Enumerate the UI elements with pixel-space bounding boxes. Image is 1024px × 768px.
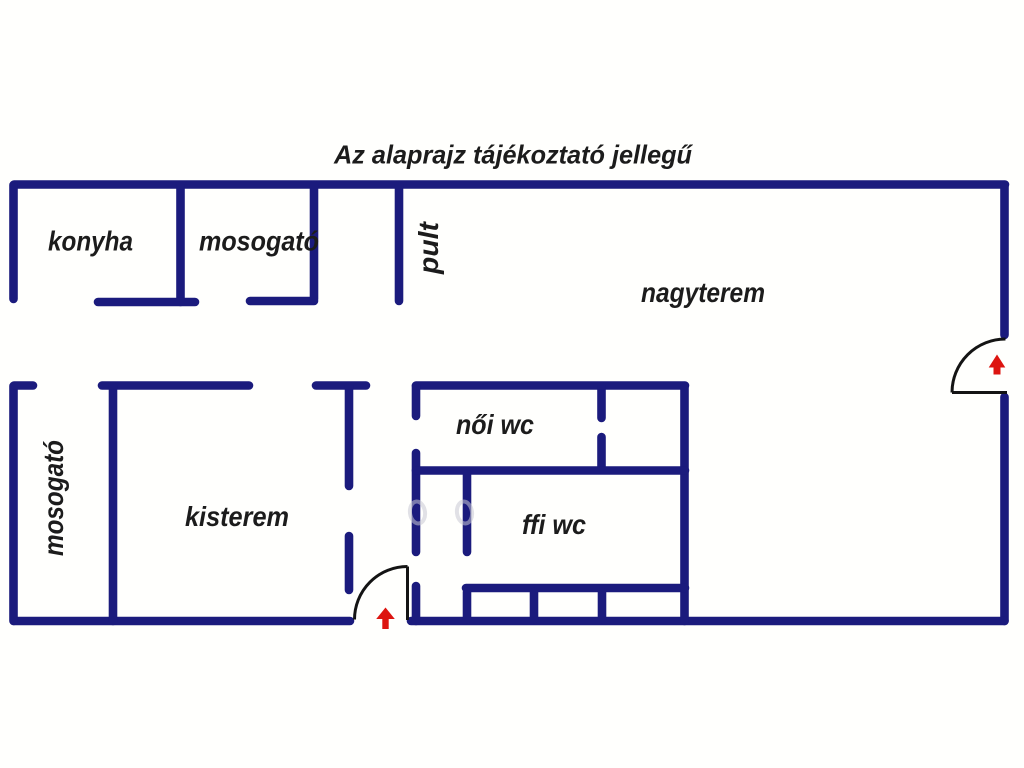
svg-text:pult: pult xyxy=(413,220,444,275)
svg-text:Az alaprajz tájékoztató jelleg: Az alaprajz tájékoztató jellegű xyxy=(333,140,694,170)
svg-text:ffi wc: ffi wc xyxy=(522,509,586,540)
svg-text:mosogató: mosogató xyxy=(38,440,69,556)
svg-text:női wc: női wc xyxy=(456,409,534,440)
svg-text:nagyterem: nagyterem xyxy=(641,277,765,308)
svg-text:mosogató: mosogató xyxy=(199,226,319,257)
svg-text:konyha: konyha xyxy=(48,226,133,257)
svg-text:kisterem: kisterem xyxy=(185,501,289,532)
